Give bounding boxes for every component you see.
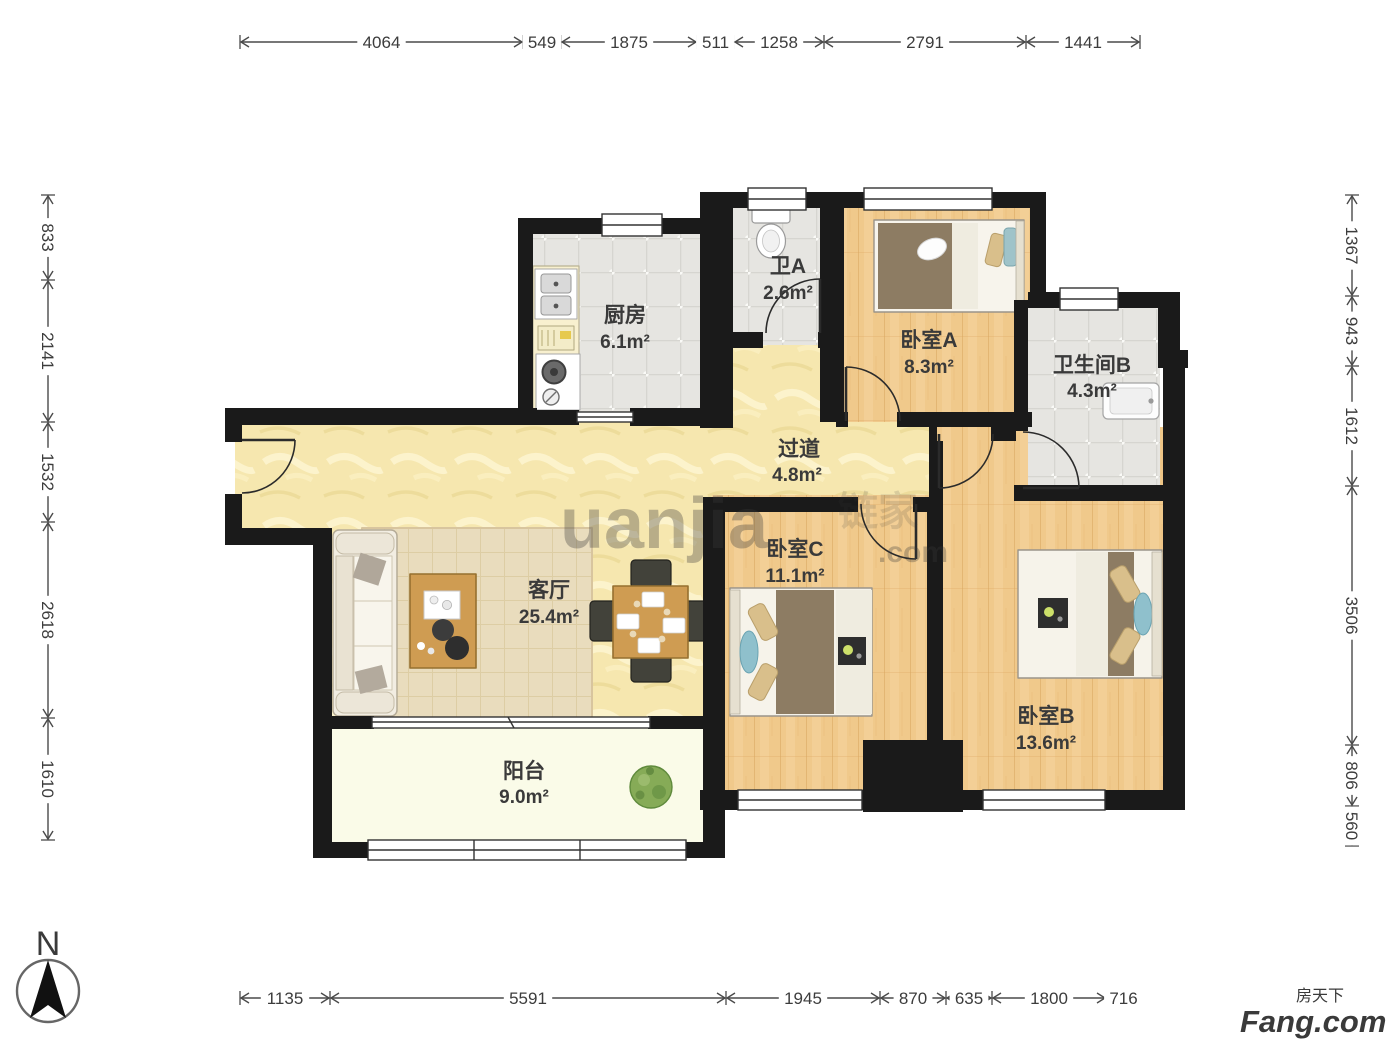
- compass-north-label: N: [36, 925, 61, 963]
- fang-watermark-logo: Fang.com: [1240, 1004, 1386, 1039]
- floorplan-page: 4064549187551112582791144111355591194587…: [0, 0, 1400, 1050]
- dim-label: 1367: [1342, 227, 1361, 265]
- dim-label: 560: [1342, 812, 1361, 840]
- dim-label: 1945: [784, 989, 822, 1008]
- center-watermark: uanjia 链家 .com: [560, 484, 948, 569]
- dim-label: 870: [899, 989, 927, 1008]
- floorplan-drawing: 4064549187551112582791144111355591194587…: [0, 0, 1400, 1050]
- dim-label: 635: [955, 989, 983, 1008]
- compass-needle-icon: [30, 960, 66, 1018]
- kitchen-threshold: [577, 412, 633, 422]
- room-label-bath-b: 卫生间B: [1053, 353, 1131, 377]
- balcony-window: [368, 840, 686, 860]
- center-watermark-cjk: 链家: [838, 490, 918, 534]
- room-label-bath-a: 卫A: [770, 255, 806, 278]
- dim-side-bottom: 1135559119458706351800716: [240, 988, 1143, 1009]
- room-label-bedroom-a: 卧室A: [900, 328, 957, 352]
- room-area-bath-b: 4.3m²: [1067, 381, 1117, 402]
- kitchen-counter: [533, 266, 580, 412]
- dim-side-top: 40645491875511125827911441: [240, 32, 1140, 53]
- fang-watermark: 房天下 Fang.com: [1240, 987, 1386, 1039]
- bed-b: [1018, 550, 1162, 678]
- center-watermark-text: uanjia: [560, 484, 769, 564]
- dim-label: 549: [528, 33, 556, 52]
- dim-side-right: 136794316123506806560: [1342, 195, 1363, 846]
- dim-label: 1258: [760, 33, 798, 52]
- kitchen-window: [602, 214, 662, 236]
- bath-a-window: [748, 188, 806, 210]
- dim-label: 806: [1342, 761, 1361, 789]
- room-area-bedroom-b: 13.6m²: [1016, 733, 1076, 754]
- fang-watermark-cjk: 房天下: [1296, 987, 1344, 1005]
- bedroom-a-window: [864, 188, 992, 210]
- room-label-kitchen: 厨房: [604, 303, 646, 327]
- dim-label: 2141: [38, 332, 57, 370]
- dim-label: 5591: [509, 989, 547, 1008]
- bedroom-b-window: [983, 790, 1105, 810]
- room-area-living: 25.4m²: [519, 607, 579, 628]
- dim-label: 2791: [906, 33, 944, 52]
- room-label-hallway: 过道: [778, 437, 820, 461]
- dim-label: 1800: [1030, 989, 1068, 1008]
- sofa: [333, 530, 397, 716]
- room-label-bedroom-b: 卧室B: [1017, 704, 1074, 728]
- dim-label: 1135: [267, 989, 304, 1008]
- dim-label: 2618: [38, 601, 57, 639]
- bedroom-c-window: [738, 790, 862, 810]
- balcony-sliding-door: [372, 717, 650, 728]
- room-label-living: 客厅: [528, 578, 570, 602]
- bath-b-window: [1060, 288, 1118, 310]
- room-area-hallway: 4.8m²: [772, 465, 822, 486]
- room-area-bath-a: 2.6m²: [763, 283, 813, 304]
- dim-label: 1441: [1064, 33, 1102, 52]
- dim-label: 3506: [1342, 597, 1361, 635]
- room-label-bedroom-c: 卧室C: [766, 537, 823, 561]
- coffee-table: [410, 574, 476, 668]
- dim-label: 1612: [1342, 407, 1361, 445]
- dim-label: 511: [702, 33, 729, 52]
- center-watermark-com: .com: [878, 536, 948, 569]
- room-area-bedroom-c: 11.1m²: [765, 566, 824, 587]
- dim-label: 1610: [38, 760, 57, 798]
- compass: N: [17, 925, 79, 1022]
- dim-label: 716: [1109, 989, 1137, 1008]
- room-area-balcony: 9.0m²: [499, 787, 549, 808]
- room-label-balcony: 阳台: [503, 759, 545, 783]
- dim-label: 1875: [610, 33, 648, 52]
- dim-label: 943: [1342, 317, 1361, 345]
- room-area-bedroom-a: 8.3m²: [904, 357, 954, 378]
- room-area-kitchen: 6.1m²: [600, 332, 650, 353]
- bed-a: [874, 220, 1024, 312]
- dim-label: 4064: [363, 33, 401, 52]
- dim-label: 1532: [38, 453, 57, 491]
- dim-side-left: 8332141153226181610: [38, 195, 59, 840]
- plant: [630, 766, 672, 808]
- bed-c: [730, 588, 872, 716]
- dim-label: 833: [38, 223, 57, 251]
